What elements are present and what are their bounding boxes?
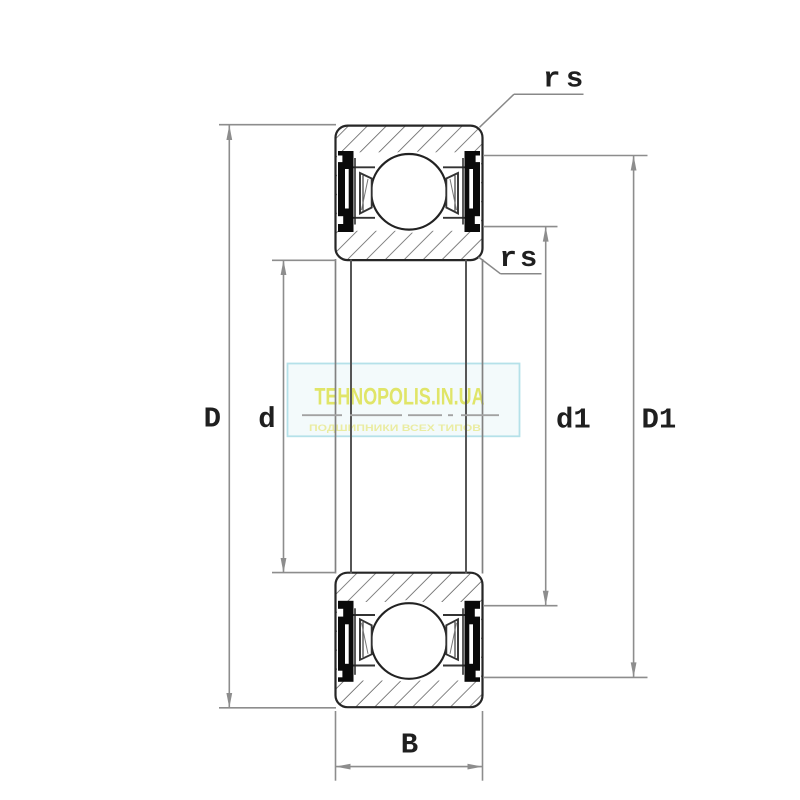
svg-text:d1: d1 (556, 404, 591, 437)
svg-text:D1: D1 (642, 404, 677, 437)
svg-text:TEHNOPOLIS.IN.UA: TEHNOPOLIS.IN.UA (315, 384, 485, 411)
svg-text:D: D (204, 403, 221, 436)
svg-text:B: B (401, 729, 418, 762)
svg-text:d: d (258, 403, 275, 436)
svg-text:rs: rs (500, 242, 541, 275)
svg-text:rs: rs (543, 63, 589, 96)
